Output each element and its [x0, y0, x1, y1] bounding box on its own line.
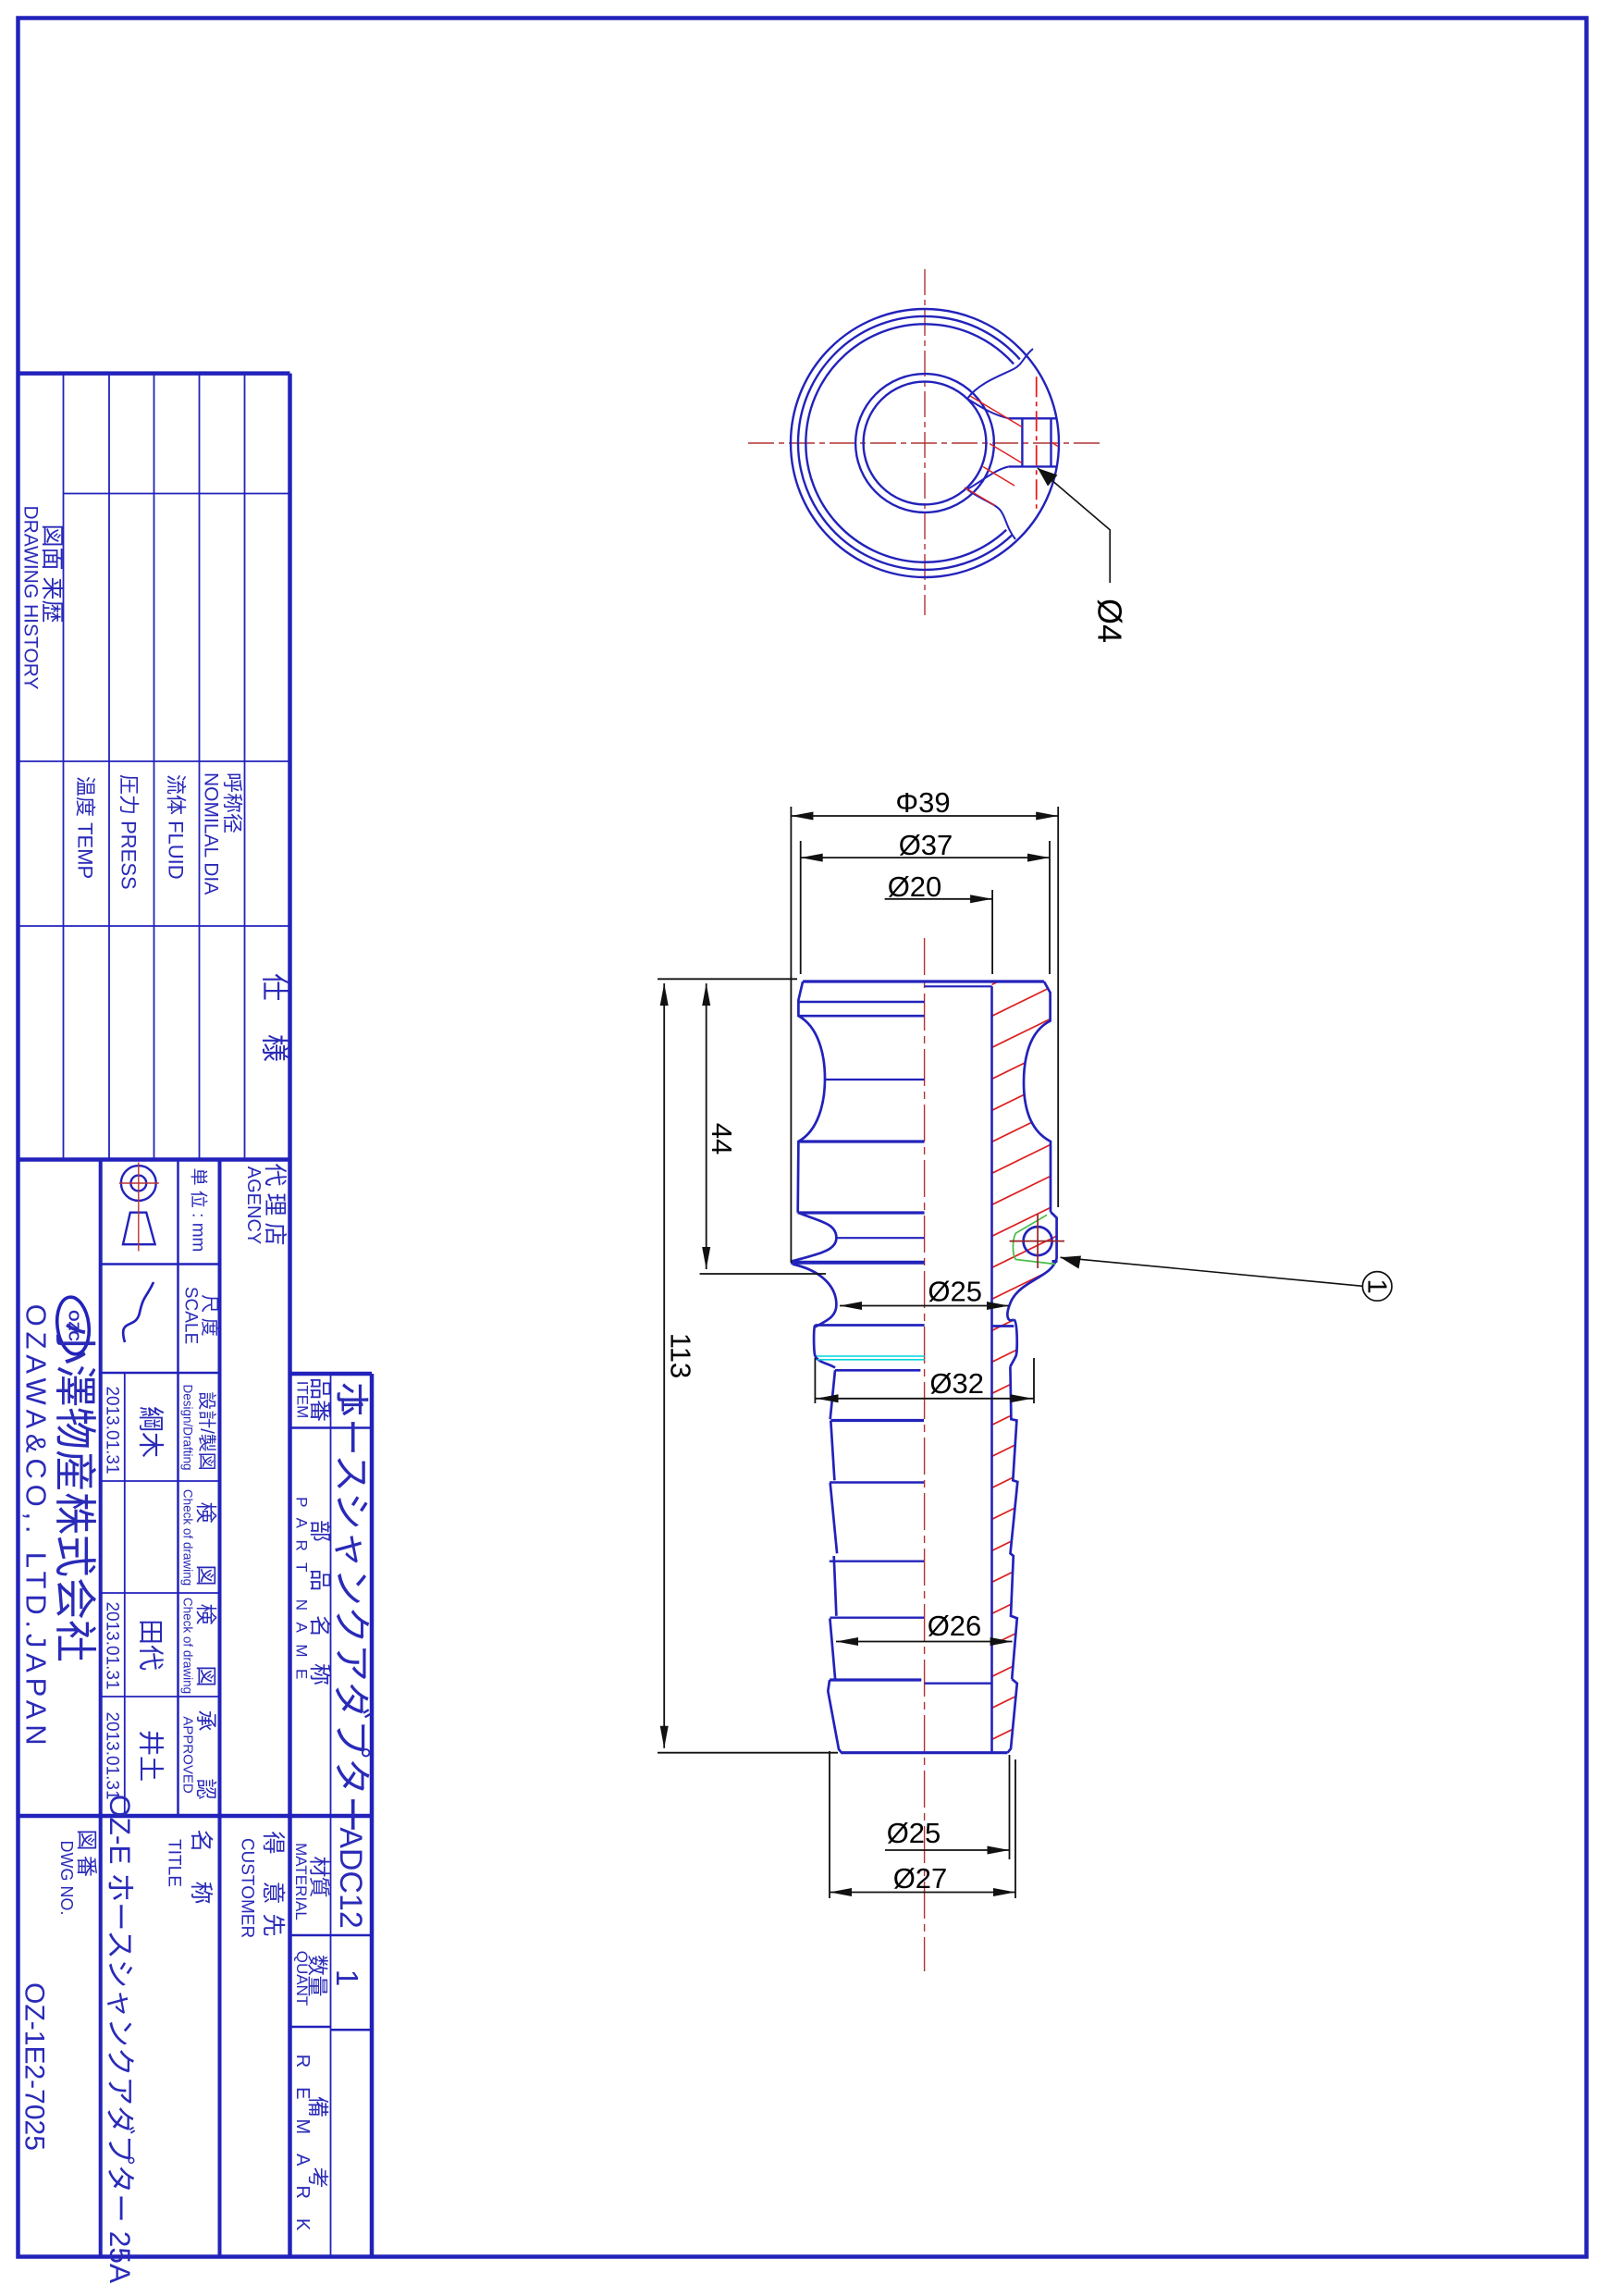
svg-text:2013.01.31: 2013.01.31: [103, 1386, 122, 1474]
svg-text:質: 質: [308, 1877, 332, 1898]
svg-text:呼称径: 呼称径: [221, 772, 244, 833]
svg-text:Ø37: Ø37: [899, 829, 953, 861]
svg-text:様: 様: [259, 1034, 289, 1062]
svg-text:Ø4: Ø4: [1091, 599, 1129, 643]
svg-text:認: 認: [194, 1779, 218, 1800]
svg-text:圧力 PRESS: 圧力 PRESS: [117, 774, 141, 890]
svg-text:44: 44: [706, 1123, 738, 1154]
svg-text:QUANT: QUANT: [293, 1951, 311, 2006]
svg-text:MATERIAL: MATERIAL: [292, 1843, 310, 1920]
svg-text:検: 検: [194, 1604, 218, 1625]
svg-text:Ø25: Ø25: [887, 1817, 941, 1849]
svg-text:Ø32: Ø32: [929, 1367, 984, 1400]
svg-text:単 位 : mm: 単 位 : mm: [189, 1168, 209, 1253]
svg-text:NOMILAL DIA: NOMILAL DIA: [201, 772, 222, 895]
svg-text:DRAWING HISTORY: DRAWING HISTORY: [20, 505, 42, 689]
svg-text:Φ39: Φ39: [895, 786, 950, 819]
svg-text:DWG NO.: DWG NO.: [57, 1841, 76, 1916]
svg-text:OZAWA&CO,. LTD.JAPAN: OZAWA&CO,. LTD.JAPAN: [20, 1304, 53, 1751]
svg-text:尺 度: 尺 度: [199, 1294, 220, 1337]
svg-text:Ø26: Ø26: [928, 1610, 982, 1642]
svg-text:意: 意: [260, 1881, 286, 1904]
svg-text:図: 図: [194, 1666, 218, 1687]
svg-text:2013.01.31: 2013.01.31: [103, 1601, 122, 1689]
svg-text:Ø27: Ø27: [893, 1862, 948, 1895]
svg-text:図: 図: [75, 1830, 99, 1851]
svg-text:番: 番: [75, 1856, 99, 1877]
svg-text:Ø20: Ø20: [888, 870, 942, 903]
svg-text:綱木: 綱木: [137, 1406, 166, 1458]
svg-text:2013.01.31: 2013.01.31: [103, 1711, 122, 1799]
svg-text:Design/Drafting: Design/Drafting: [181, 1384, 195, 1470]
svg-text:先: 先: [260, 1913, 286, 1936]
svg-text:小澤物産株式会社: 小澤物産株式会社: [51, 1322, 99, 1662]
svg-text:OZ-E ホースシャンクアダプター 25A: OZ-E ホースシャンクアダプター 25A: [104, 1795, 137, 2284]
svg-text:図面 来歴: 図面 来歴: [39, 525, 65, 623]
svg-text:称: 称: [188, 1881, 214, 1904]
svg-text:名: 名: [188, 1829, 214, 1852]
svg-text:113: 113: [665, 1333, 697, 1378]
svg-text:PART NAME: PART NAME: [293, 1497, 311, 1691]
svg-text:TITLE: TITLE: [165, 1839, 184, 1887]
svg-text:ホースシャンクアダプター: ホースシャンクアダプター: [330, 1380, 373, 1833]
svg-text:田代: 田代: [137, 1619, 166, 1671]
svg-text:図: 図: [194, 1565, 218, 1586]
svg-text:仕: 仕: [259, 973, 289, 1001]
svg-text:1: 1: [330, 1969, 364, 1986]
svg-text:井土: 井土: [137, 1730, 166, 1782]
svg-text:ADC12: ADC12: [333, 1827, 368, 1929]
svg-text:温度 TEMP: 温度 TEMP: [74, 776, 97, 879]
svg-text:Check of drawing: Check of drawing: [181, 1598, 195, 1694]
svg-text:材: 材: [308, 1857, 332, 1878]
svg-text:ITEM: ITEM: [294, 1381, 312, 1419]
svg-text:AGENCY: AGENCY: [243, 1167, 264, 1244]
svg-text:1: 1: [1362, 1278, 1392, 1293]
svg-text:代 理 店: 代 理 店: [262, 1164, 288, 1246]
svg-text:設計/製図: 設計/製図: [196, 1391, 217, 1471]
svg-text:REMARK: REMARK: [292, 2055, 313, 2251]
svg-text:Check of drawing: Check of drawing: [181, 1489, 195, 1586]
svg-text:CUSTOMER: CUSTOMER: [238, 1838, 257, 1938]
svg-text:得: 得: [260, 1831, 286, 1854]
svg-text:SCALE: SCALE: [181, 1287, 201, 1344]
svg-text:Ø25: Ø25: [928, 1276, 982, 1308]
svg-text:APPROVED: APPROVED: [180, 1716, 196, 1794]
svg-text:OZ-1E2-7025: OZ-1E2-7025: [19, 1982, 50, 2151]
svg-text:流体 FLUID: 流体 FLUID: [165, 774, 188, 880]
svg-text:承: 承: [194, 1710, 218, 1732]
svg-text:検: 検: [194, 1502, 218, 1524]
